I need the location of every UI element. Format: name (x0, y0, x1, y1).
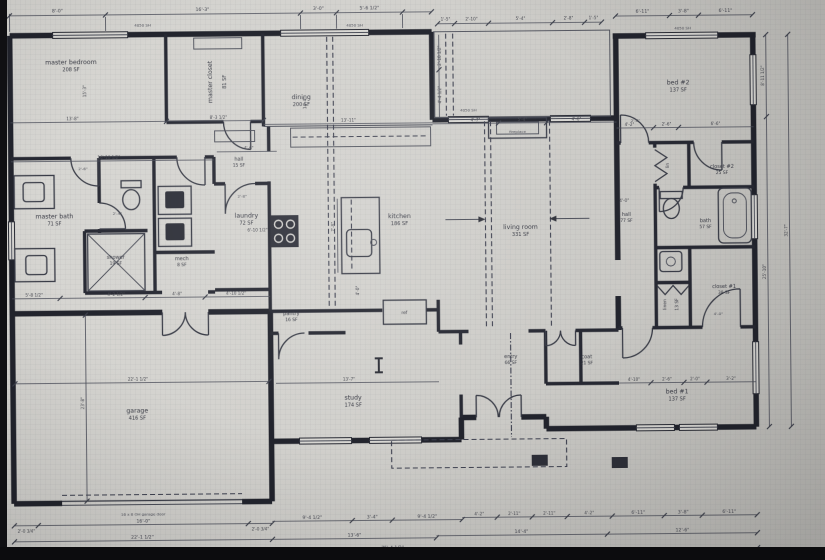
window (753, 342, 759, 394)
dim-label: 3'-0" (313, 6, 324, 12)
room-label-hall-bed: hall (622, 212, 631, 218)
dim-label: 12'-6" (675, 527, 689, 533)
screen-edge-left (0, 0, 7, 560)
room-label-hall: hall (234, 157, 243, 163)
room-area-master-bath: 71 SF (47, 221, 61, 227)
toilet-fixture (660, 191, 682, 218)
ref-label: ref (401, 310, 407, 316)
room-label-garage: garage (126, 408, 148, 415)
dim-label: 4'-6" (244, 146, 254, 151)
bathtub-fixture (718, 188, 752, 243)
dim-label: 1'-5" (589, 15, 599, 20)
dim-label: 14'-4" (514, 529, 528, 535)
room-area-kitchen: 186 SF (391, 221, 408, 227)
ceiling-break-lines (327, 34, 592, 438)
dim-label: 13'-6" (348, 533, 362, 539)
dim-label: 16'-10 1/2" (97, 155, 120, 160)
floor-plan-drawing: master bedroom 208 SF master closet 81 S… (0, 0, 825, 560)
dim-label: 4'-10" (628, 377, 640, 382)
dim-label: 2'-6" (662, 377, 672, 382)
dim-label: 7'-8" (330, 222, 335, 232)
window (679, 424, 717, 430)
dim-label: 4'-4 1/2" (437, 86, 442, 104)
room-label-bath2: bath (700, 218, 711, 224)
dim-label: 4'-2" (474, 511, 484, 516)
dim-label: 9'-4 1/2" (302, 515, 322, 521)
dim-label: 2'-11" (508, 511, 520, 516)
door-size-tag: 2'-8" (238, 194, 247, 199)
dim-label: 4'-2" (584, 510, 594, 515)
dim-label: 25'-10" (762, 264, 767, 279)
room-label-pantry: pantry (283, 311, 299, 317)
room-label-linen: linen (662, 299, 668, 310)
door-size-tag: 4'-0" (714, 311, 723, 316)
room-area-living-room: 331 SF (512, 232, 529, 238)
kitchen-counter (291, 127, 431, 147)
beam-column-symbol (375, 358, 383, 372)
room-label-master-closet: master closet (207, 60, 214, 103)
dim-label: 23'-8" (80, 397, 85, 409)
room-area-bed2: 137 SF (670, 87, 687, 93)
room-area-pantry: 16 SF (285, 317, 298, 323)
room-label-bed2: bed #2 (667, 79, 690, 86)
dim-label: 16'-0" (136, 519, 150, 525)
dim-label: 8'-11 1/2" (760, 65, 765, 85)
room-label-master-bath: master bath (35, 213, 73, 220)
room-label-living-room: living room (503, 224, 538, 231)
dim-label: 2'-0 3/4" (18, 529, 36, 534)
window (636, 424, 674, 430)
patio-outline (434, 30, 611, 118)
room-area-garage: 416 SF (129, 416, 146, 422)
dim-label: 2'-6" (662, 122, 672, 127)
room-label-mech: mech (175, 256, 189, 262)
porch-outline (392, 438, 628, 470)
bath-sink-fixture (660, 251, 682, 271)
room-label-master-bedroom: master bedroom (45, 59, 97, 66)
dim-label: 5'-4" (516, 16, 526, 21)
dim-label: 2'-8" (564, 15, 574, 20)
dim-label: 3'-8" (678, 8, 689, 14)
room-area-linen: 13 SF (674, 298, 680, 311)
room-area-bath2: 57 SF (699, 224, 712, 230)
room-area-entry: 66 SF (505, 360, 518, 366)
dim-label: 2'-0 3/4" (252, 526, 270, 531)
dryer-fixture (158, 218, 191, 246)
vanity-sink-fixture (14, 175, 54, 208)
dim-label: 13'-11" (341, 118, 356, 123)
dim-label: 4'-2 1/2" (107, 292, 125, 297)
window (53, 32, 128, 39)
room-area-hall: 15 SF (233, 163, 246, 169)
room-area-coat: 21 SF (581, 360, 594, 366)
built-in-cabinet (215, 131, 255, 142)
dim-label: 4'-7" (471, 117, 481, 122)
built-in-cabinet (194, 38, 242, 49)
window-tag: 4050 SH (346, 22, 363, 27)
room-label-kitchen: kitchen (388, 213, 411, 220)
dim-label: 6'-10 1/2" (247, 227, 267, 232)
room-area-master-closet: 81 SF (222, 75, 228, 89)
dim-label: 1'-5" (441, 17, 451, 22)
dim-label: 5'-4" (518, 117, 528, 122)
room-area-shower: 19 SF (110, 261, 123, 267)
window (300, 438, 352, 444)
room-label-bed1: bed #1 (666, 388, 689, 395)
dim-label: 22'-1 1/2" (128, 377, 148, 382)
room-area-study: 174 SF (345, 402, 362, 408)
room-area-bed1: 137 SF (669, 396, 686, 402)
dim-label: 14'-4" (302, 97, 307, 109)
dim-label: 8'-3 1/2" (210, 115, 228, 120)
door-size-tag: 2'-4" (113, 211, 122, 216)
window (646, 32, 718, 39)
dim-label: 2'-11" (543, 511, 555, 516)
room-area-laundry: 72 SF (239, 221, 253, 227)
room-label-closet1: closet #1 (712, 284, 736, 290)
room-label-entry: entry (504, 354, 517, 360)
room-label-laundry: laundry (235, 212, 259, 219)
window-tag: 4050 SH (460, 107, 477, 112)
vanity-sink-fixture (15, 248, 55, 281)
dim-label: 32'-7" (783, 224, 788, 236)
window-tag: 4050 SH (134, 22, 151, 27)
dim-label: 5'-8 1/2" (25, 293, 43, 298)
door-size-tag: 2'-6" (78, 166, 87, 171)
door-size-tag: 2'-8" (631, 118, 640, 123)
dim-label: 16'-3" (195, 7, 209, 13)
fireplace-label: fireplace (509, 129, 526, 134)
dim-label: 6'-11" (718, 8, 732, 14)
dim-label: 9'-4 1/2" (417, 514, 437, 520)
room-labels: master bedroom 208 SF master closet 81 S… (34, 53, 737, 423)
dim-label: 15'-3" (82, 85, 87, 97)
floor-plan-photo: master bedroom 208 SF master closet 81 S… (0, 0, 825, 560)
dim-label: 3'-2" (726, 376, 736, 381)
dim-label: 13'-8" (66, 116, 78, 121)
dim-label: 4'-6" (572, 116, 582, 121)
room-area-mech: 8 SF (177, 262, 187, 268)
dim-label: 4'-8" (172, 291, 182, 296)
fixtures-layer (13, 29, 754, 474)
dim-label: 3'-8" (678, 509, 689, 515)
room-label-shower: shower (107, 255, 126, 261)
dim-label: 8'-0" (52, 8, 63, 14)
dim-label: 5'-6 1/2" (359, 5, 379, 11)
window (281, 29, 369, 36)
room-area-closet2: 25 SF (716, 170, 729, 176)
room-area-closet1: 38 SF (718, 290, 731, 296)
dim-label: 6'-11" (636, 9, 650, 15)
dim-label: 6'-11" (631, 510, 645, 516)
dim-label: 22'-1 1/2" (131, 534, 154, 540)
dim-label: 13'-7" (343, 377, 355, 382)
toilet-fixture (121, 181, 141, 210)
washer-fixture (158, 186, 191, 214)
room-area-hall-bed: 77 SF (620, 218, 633, 224)
window (8, 222, 14, 260)
walls-exterior (10, 29, 760, 504)
room-area-master-bedroom: 208 SF (62, 67, 79, 73)
room-label-lin: lin (665, 163, 671, 168)
room-label-study: study (345, 394, 363, 401)
dim-label: 6'-6" (711, 121, 721, 126)
walls-interior (10, 29, 757, 422)
room-label-coat: coat (581, 354, 592, 360)
dim-label: 4'-0" (619, 198, 629, 203)
dim-label: 3'-4" (367, 514, 378, 520)
range-fixture (270, 215, 298, 247)
kitchen-island (341, 197, 380, 273)
screen-edge-bottom (0, 547, 825, 560)
dim-label: 2'-10 1/2" (437, 46, 442, 66)
dim-label: 6'-11" (722, 509, 736, 515)
room-label-closet2: closet #2 (710, 164, 734, 170)
dim-label: 4'-0" (355, 286, 360, 296)
dim-label: 2'-10" (465, 16, 477, 21)
garage-door-note: 16 x 8 OH garage door (121, 511, 166, 516)
dim-label: 2'-0" (690, 376, 700, 381)
window (750, 55, 756, 105)
window-tag: 4050 SH (674, 25, 691, 30)
dim-label: 4'-10 1/2" (226, 291, 246, 296)
